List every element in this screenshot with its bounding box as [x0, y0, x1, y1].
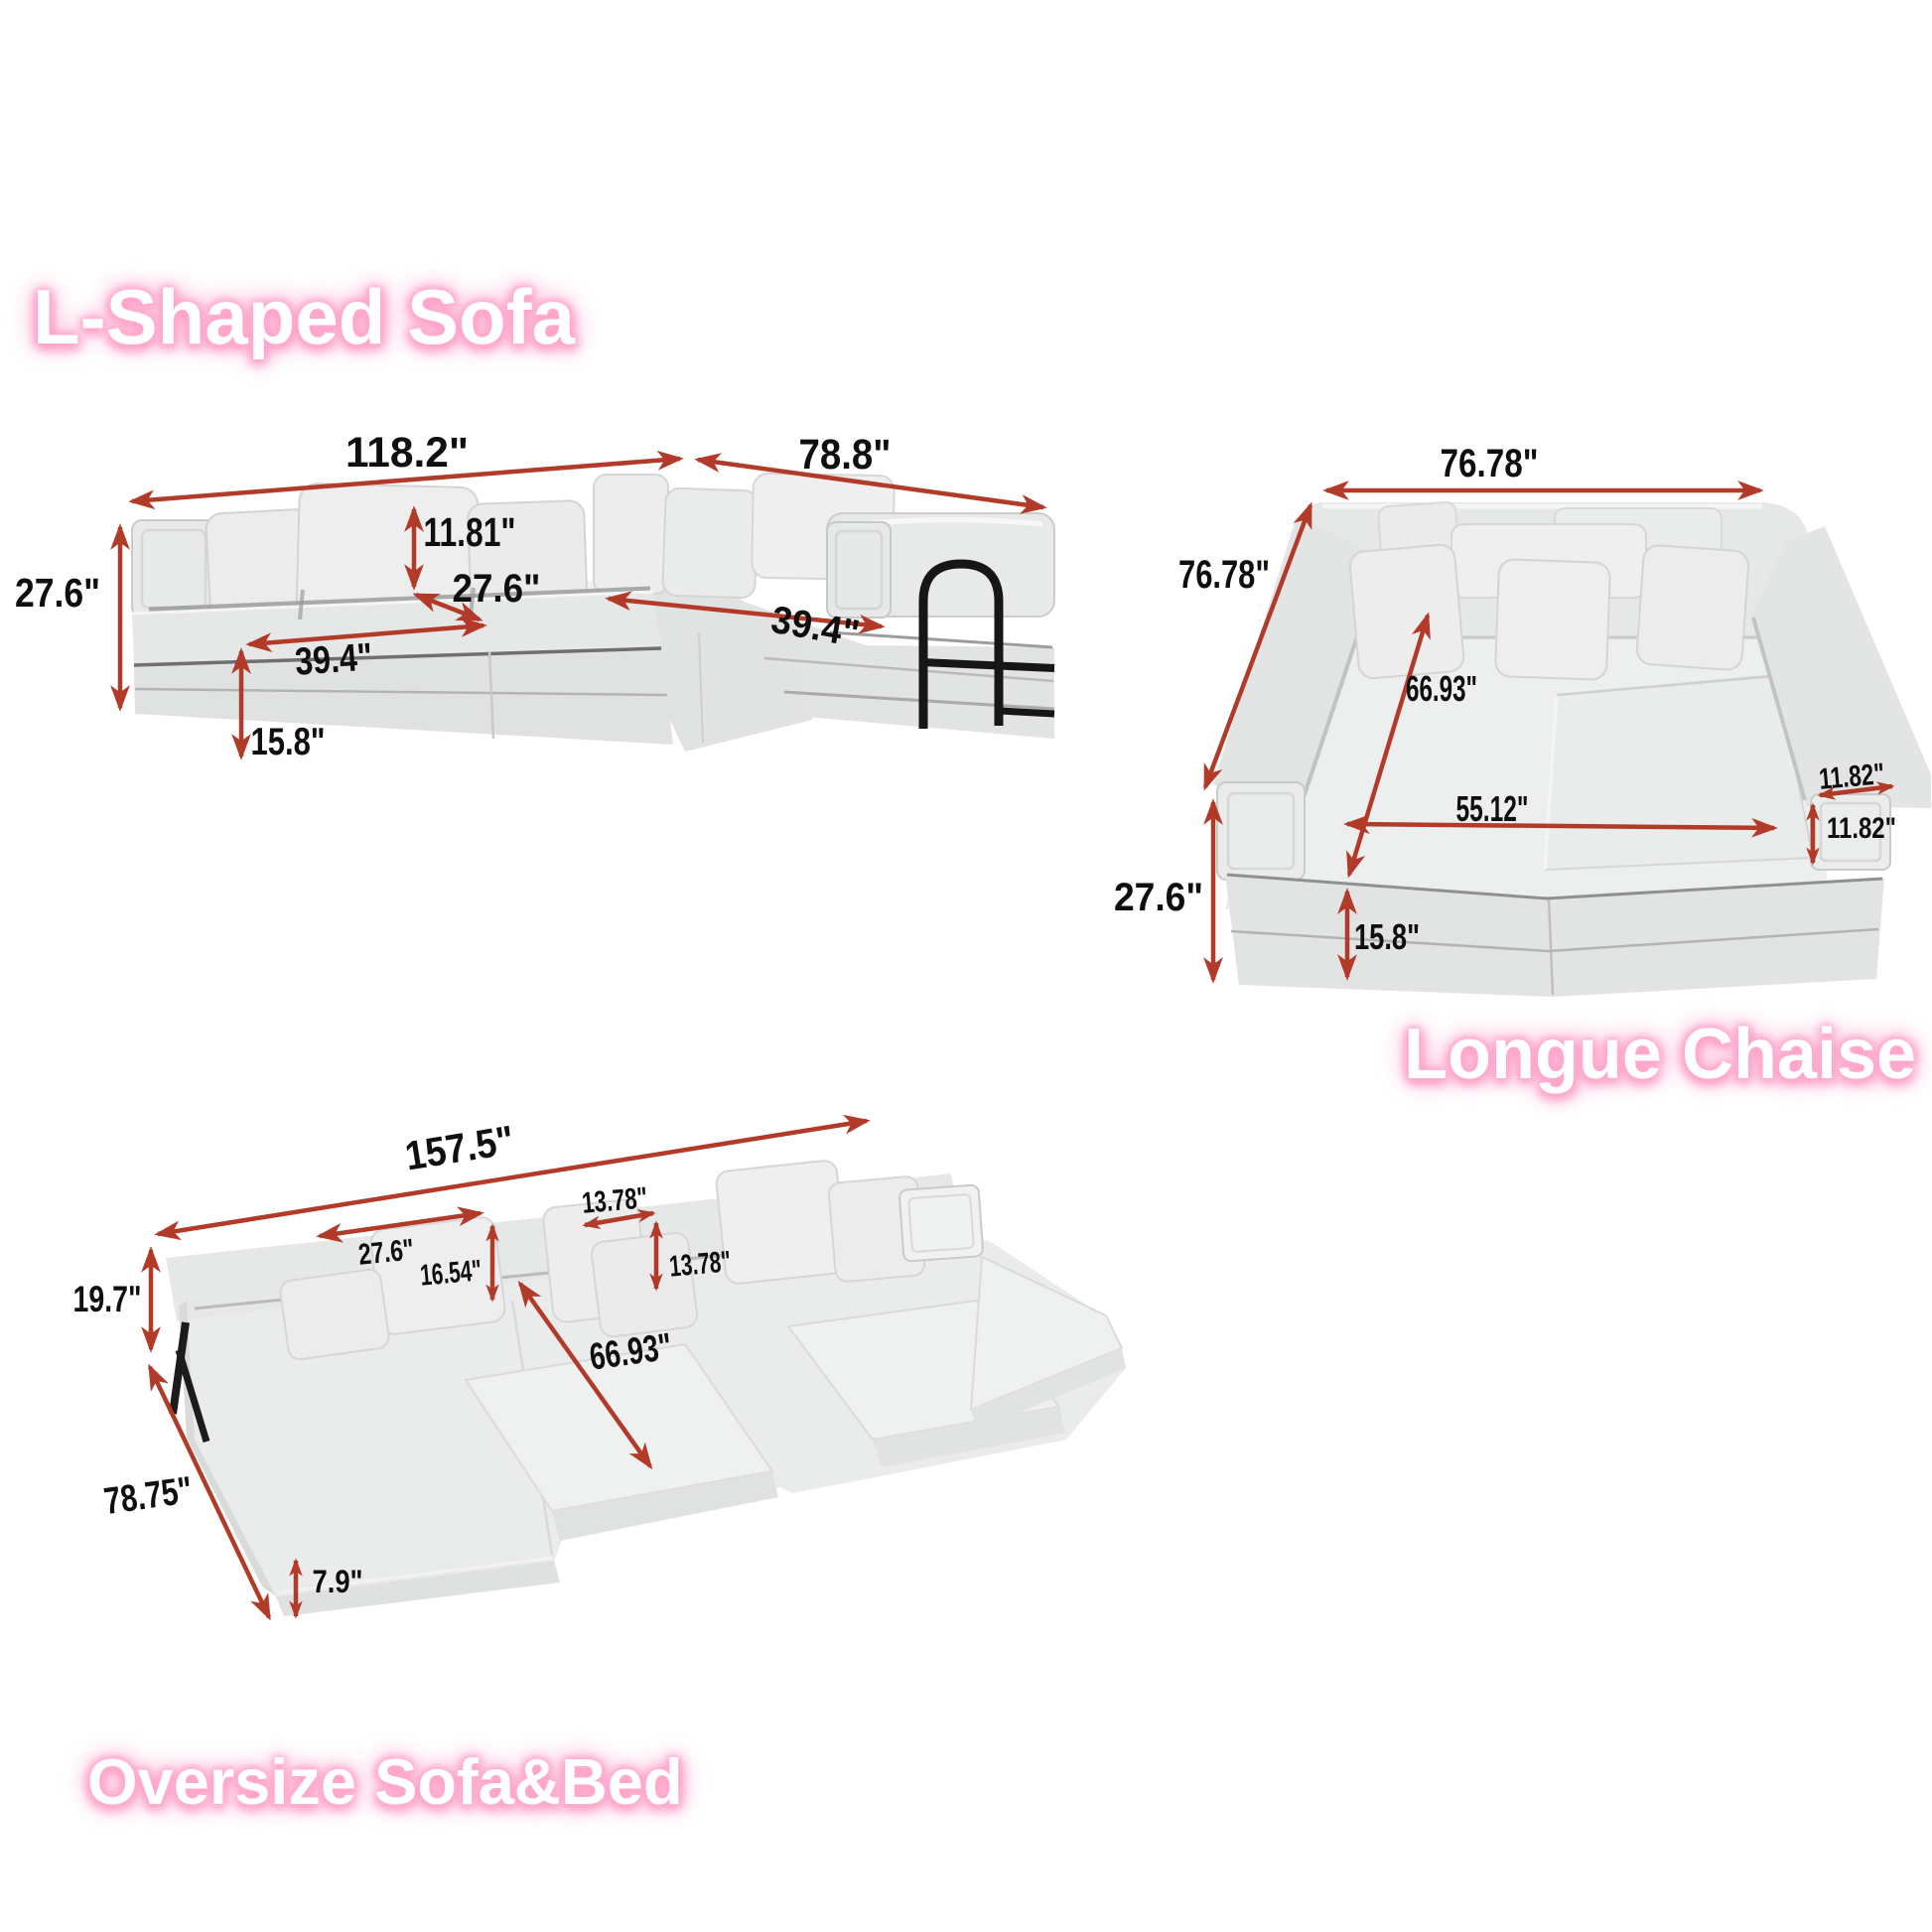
svg-text:19.7": 19.7" — [73, 1279, 142, 1319]
svg-text:15.8": 15.8" — [1354, 916, 1420, 957]
svg-text:55.12": 55.12" — [1456, 788, 1529, 829]
svg-text:78.75": 78.75" — [101, 1469, 195, 1523]
svg-text:78.8": 78.8" — [799, 431, 892, 479]
svg-text:27.6": 27.6" — [453, 567, 541, 611]
svg-text:27.6": 27.6" — [1114, 876, 1203, 919]
svg-text:7.9": 7.9" — [313, 1564, 363, 1599]
svg-text:13.78": 13.78" — [581, 1181, 649, 1220]
svg-text:11.82": 11.82" — [1827, 812, 1896, 845]
svg-text:157.5": 157.5" — [402, 1117, 517, 1179]
svg-text:27.6": 27.6" — [15, 570, 100, 616]
svg-text:76.78": 76.78" — [1441, 442, 1539, 485]
svg-text:11.82": 11.82" — [1818, 758, 1886, 796]
svg-text:16.54": 16.54" — [419, 1254, 483, 1292]
svg-text:27.6": 27.6" — [356, 1233, 415, 1272]
svg-text:39.4": 39.4" — [294, 635, 374, 683]
svg-text:15.8": 15.8" — [251, 721, 326, 763]
svg-text:13.78": 13.78" — [668, 1245, 733, 1283]
svg-text:76.78": 76.78" — [1178, 553, 1270, 597]
svg-text:118.2": 118.2" — [345, 429, 469, 477]
svg-text:11.81": 11.81" — [424, 509, 516, 555]
svg-text:66.93": 66.93" — [1406, 668, 1477, 709]
